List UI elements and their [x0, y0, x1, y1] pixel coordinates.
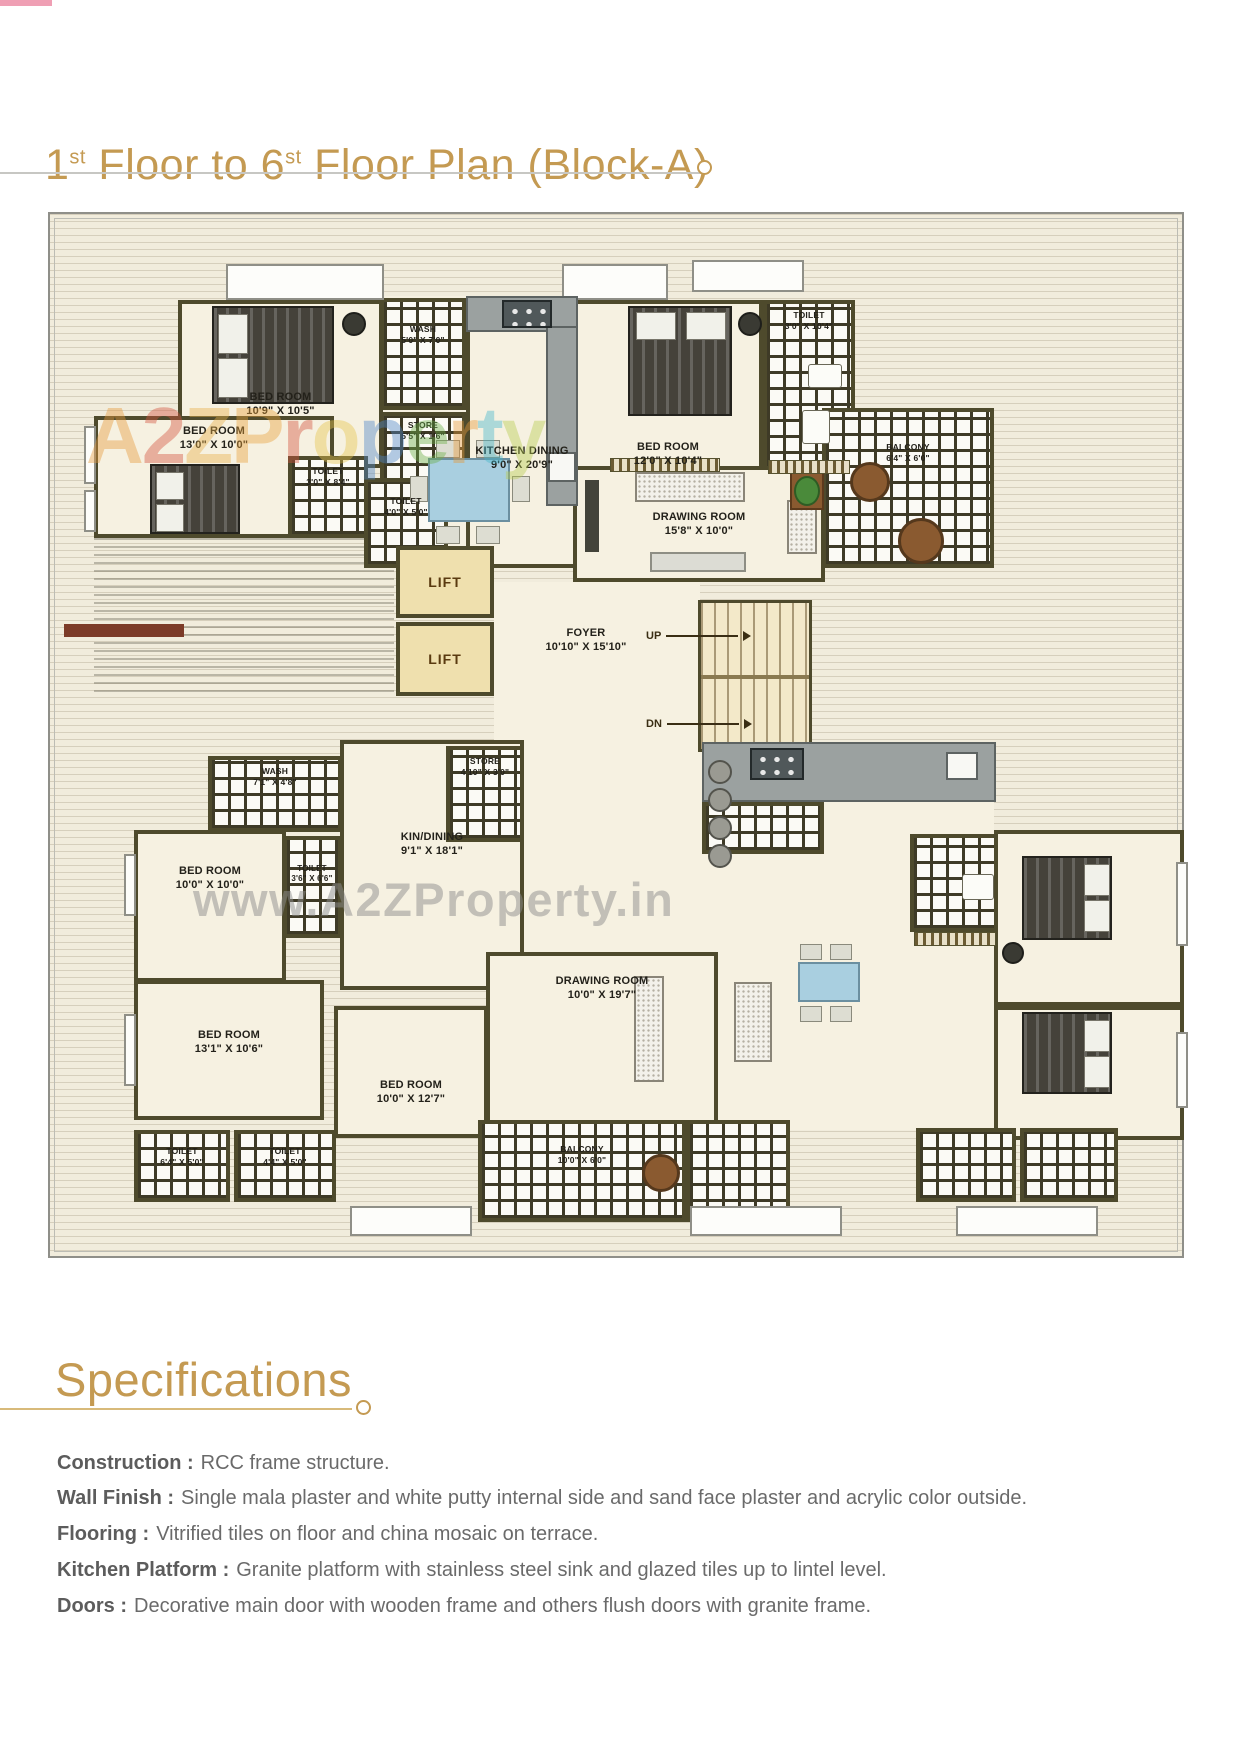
- wall-segment: [64, 624, 184, 637]
- spec-item-flooring: Flooring :Vitrified tiles on floor and c…: [57, 1523, 598, 1546]
- chair-icon: [830, 1006, 852, 1022]
- burner-icon: [708, 788, 732, 812]
- room-name: BED ROOM: [178, 390, 383, 404]
- room-label: TOILET 3'6" X 6'6": [279, 864, 345, 884]
- window-ledge: [690, 1206, 842, 1236]
- room-dims: 7'1" X 4'8": [210, 777, 340, 788]
- title-underline: [0, 172, 706, 174]
- room-name: BED ROOM: [94, 424, 334, 438]
- door-mat: [914, 932, 996, 946]
- room-name: DRAWING ROOM: [573, 510, 825, 524]
- spec-item-doors: Doors :Decorative main door with wooden …: [57, 1595, 871, 1618]
- room-label: KIN/DINING 9'1" X 18'1": [340, 830, 524, 859]
- specs-underline: [0, 1408, 352, 1410]
- room-name: TOILET: [765, 310, 853, 321]
- floor-plan: BED ROOM 10'9" X 10'5" WASH 5'0" X 7'0" …: [48, 212, 1184, 1258]
- room-name: BED ROOM: [334, 1078, 488, 1092]
- stove-icon: [750, 748, 804, 780]
- room-label: TOILET 4'0" X 5'0": [366, 496, 446, 517]
- room-wash-1: [380, 298, 466, 410]
- room-dims: 10'10" X 15'10": [502, 640, 670, 654]
- spec-text: Granite platform with stainless steel si…: [236, 1559, 886, 1581]
- window-ledge: [1176, 862, 1188, 946]
- lift-label: LIFT: [428, 574, 462, 590]
- title-text: Floor Plan (Block-A): [302, 141, 709, 189]
- spec-text: Decorative main door with wooden frame a…: [134, 1595, 871, 1617]
- room-name: TOILET: [290, 466, 366, 477]
- room-label: BED ROOM 12'0" X 10'4": [573, 440, 763, 469]
- chair-icon: [436, 526, 460, 544]
- room-label: BED ROOM 13'0" X 10'0": [94, 424, 334, 453]
- room-dims: 4'4" X 5'0": [236, 1157, 334, 1168]
- spec-item-construction: Construction :RCC frame structure.: [57, 1452, 390, 1475]
- sofa-icon: [635, 472, 745, 502]
- room-name: KIN/DINING: [340, 830, 524, 844]
- room-label: TOILET 3'0" X 8'4": [290, 466, 366, 487]
- room-name: BED ROOM: [573, 440, 763, 454]
- planter-box: [790, 472, 824, 510]
- up-label: UP: [646, 630, 661, 642]
- room-label: TOILET 6'4" X 5'0": [136, 1146, 228, 1167]
- room-name: WASH: [210, 766, 340, 777]
- lift-2: LIFT: [396, 622, 494, 696]
- side-table-icon: [738, 312, 762, 336]
- planter-pot-icon: [850, 462, 890, 502]
- floor-patch: [522, 740, 704, 954]
- stair-landing: [701, 675, 809, 679]
- room-label: FOYER 10'10" X 15'10": [502, 626, 670, 655]
- room-label: BED ROOM 10'0" X 10'0": [134, 864, 286, 893]
- down-label: DN: [646, 718, 662, 730]
- room-label: TOILET 4'4" X 5'0": [236, 1146, 334, 1167]
- room-name: KITCHEN DINING: [468, 444, 576, 458]
- window-ledge: [226, 264, 384, 300]
- title-underline-end-ring: [697, 160, 712, 175]
- room-name: STORE: [448, 756, 522, 767]
- room-dims: 15'8" X 10'0": [573, 524, 825, 538]
- window-ledge: [1176, 1032, 1188, 1108]
- window-ledge: [562, 264, 668, 300]
- title-text: Floor to 6: [86, 141, 285, 189]
- room-dims: 6'4" X 6'0": [822, 453, 994, 464]
- chair-icon: [800, 1006, 822, 1022]
- room-dims: 9'0" X 20'9": [468, 458, 576, 472]
- bed-icon: [1022, 856, 1112, 940]
- room-label: BALCONY 10'0" X 6'0": [478, 1144, 686, 1165]
- window-ledge: [956, 1206, 1098, 1236]
- title-superscript: st: [69, 146, 86, 168]
- room-label: BALCONY 6'4" X 6'0": [822, 442, 994, 463]
- room-label: WASH 7'1" X 4'8": [210, 766, 340, 787]
- pillow-icon: [156, 472, 184, 500]
- room-dims: 13'1" X 10'6": [134, 1042, 324, 1056]
- room-dims: 6'4" X 5'0": [136, 1157, 228, 1168]
- room-name: BALCONY: [478, 1144, 686, 1155]
- room-toilet-right-c: [1020, 1128, 1118, 1202]
- chair-icon: [512, 476, 530, 502]
- terrace-hatch: [94, 538, 394, 696]
- room-name: BED ROOM: [134, 864, 286, 878]
- room-dims: 10'0" X 19'7": [486, 988, 718, 1002]
- spec-text: Single mala plaster and white putty inte…: [181, 1487, 1027, 1509]
- pillow-icon: [1084, 1056, 1110, 1088]
- window-ledge: [84, 490, 96, 532]
- page-title: 1st Floor to 6st Floor Plan (Block-A): [45, 141, 709, 190]
- spec-text: RCC frame structure.: [201, 1452, 390, 1474]
- toilet-seat-icon: [962, 874, 994, 900]
- room-name: TOILET: [366, 496, 446, 507]
- room-name: DRAWING ROOM: [486, 974, 718, 988]
- room-dims: 13'0" X 10'0": [94, 438, 334, 452]
- room-name: WASH: [382, 324, 464, 335]
- room-label: BED ROOM 13'1" X 10'6": [134, 1028, 324, 1057]
- room-dims: 5'0" X 7'0": [382, 335, 464, 346]
- toilet-seat-icon: [802, 410, 830, 444]
- spec-label: Kitchen Platform :: [57, 1559, 229, 1581]
- scan-artifact-pink: [0, 0, 52, 6]
- bed-icon: [628, 306, 732, 416]
- title-text: 1: [45, 141, 69, 189]
- chair-icon: [476, 526, 500, 544]
- room-label: BED ROOM 10'9" X 10'5": [178, 390, 383, 419]
- room-label: DRAWING ROOM 10'0" X 19'7": [486, 974, 718, 1003]
- spec-text: Vitrified tiles on floor and china mosai…: [156, 1523, 598, 1545]
- spec-item-wall-finish: Wall Finish :Single mala plaster and whi…: [57, 1487, 1027, 1510]
- pillow-icon: [218, 314, 248, 354]
- room-name: FOYER: [502, 626, 670, 640]
- stairs-down-indicator: DN: [646, 718, 752, 730]
- planter-pot-icon: [898, 518, 944, 564]
- stove-icon: [502, 300, 552, 328]
- down-arrow-head-icon: [744, 719, 752, 729]
- room-dims: 10'0" X 6'0": [478, 1155, 686, 1166]
- room-label: STORE 4'10" X 3'0": [448, 756, 522, 777]
- bed-icon: [150, 464, 240, 534]
- pillow-icon: [1084, 1020, 1110, 1052]
- room-dims: 3'6" X 6'6": [279, 874, 345, 884]
- room-name: BED ROOM: [134, 1028, 324, 1042]
- room-name: TOILET: [236, 1146, 334, 1157]
- sink-icon: [946, 752, 978, 780]
- pillow-icon: [1084, 864, 1110, 896]
- room-dims: 12'0" X 10'4": [573, 454, 763, 468]
- room-label: WASH 5'0" X 7'0": [382, 324, 464, 345]
- room-label: TOILET 3'0" X 10'4": [765, 310, 853, 331]
- window-ledge: [350, 1206, 472, 1236]
- bed-icon: [1022, 1012, 1112, 1094]
- lift-1: LIFT: [396, 546, 494, 618]
- pillow-icon: [636, 312, 676, 340]
- room-label: KITCHEN DINING 9'0" X 20'9": [468, 444, 576, 473]
- room-dims: 4'0" X 5'0": [366, 507, 446, 518]
- room-bedroom-4: [134, 830, 286, 982]
- stairs-up-indicator: UP: [646, 630, 751, 642]
- room-toilet-right-b: [916, 1128, 1016, 1202]
- room-label: BED ROOM 10'0" X 12'7": [334, 1078, 488, 1107]
- room-dims: 4'10" X 3'0": [448, 767, 522, 778]
- spec-label: Wall Finish :: [57, 1487, 174, 1509]
- room-dims: 10'0" X 10'0": [134, 878, 286, 892]
- room-name: TOILET: [136, 1146, 228, 1157]
- bench-icon: [650, 552, 746, 572]
- up-arrow-icon: [666, 635, 738, 637]
- room-bedroom-6: [334, 1006, 488, 1138]
- side-table-icon: [342, 312, 366, 336]
- room-dims: 9'1" X 18'1": [340, 844, 524, 858]
- up-arrow-head-icon: [743, 631, 751, 641]
- burner-icon: [708, 844, 732, 868]
- room-name: BALCONY: [822, 442, 994, 453]
- pillow-icon: [156, 504, 184, 532]
- specs-underline-end-ring: [356, 1400, 371, 1415]
- chair-icon: [800, 944, 822, 960]
- room-label: STORE 5'5" X 1'6": [382, 420, 464, 441]
- room-dims: 3'0" X 10'4": [765, 321, 853, 332]
- chair-icon: [830, 944, 852, 960]
- side-table-icon: [1002, 942, 1024, 964]
- room-name: TOILET: [279, 864, 345, 874]
- spec-label: Construction :: [57, 1452, 194, 1474]
- pillow-icon: [686, 312, 726, 340]
- room-label: DRAWING ROOM 15'8" X 10'0": [573, 510, 825, 539]
- specs-heading: Specifications: [55, 1352, 352, 1407]
- room-dims: 10'9" X 10'5": [178, 404, 383, 418]
- room-dims: 5'5" X 1'6": [382, 431, 464, 442]
- lift-label: LIFT: [428, 651, 462, 667]
- spec-label: Flooring :: [57, 1523, 149, 1545]
- spec-item-kitchen-platform: Kitchen Platform :Granite platform with …: [57, 1559, 887, 1582]
- brochure-page: 1st Floor to 6st Floor Plan (Block-A) BE…: [0, 0, 1254, 1763]
- burner-icon: [708, 816, 732, 840]
- dining-table-icon: [798, 962, 860, 1002]
- title-superscript: st: [285, 146, 302, 168]
- room-toilet-c: [283, 836, 342, 938]
- pillow-icon: [1084, 900, 1110, 932]
- room-dims: 10'0" X 12'7": [334, 1092, 488, 1106]
- dresser-icon: [734, 982, 772, 1062]
- down-arrow-icon: [667, 723, 739, 725]
- burner-icon: [708, 760, 732, 784]
- window-ledge: [692, 260, 804, 292]
- chair-icon: [436, 440, 460, 458]
- spec-label: Doors :: [57, 1595, 127, 1617]
- plant-icon: [794, 476, 820, 506]
- room-dims: 3'0" X 8'4": [290, 477, 366, 488]
- room-name: STORE: [382, 420, 464, 431]
- washbasin-icon: [808, 364, 842, 388]
